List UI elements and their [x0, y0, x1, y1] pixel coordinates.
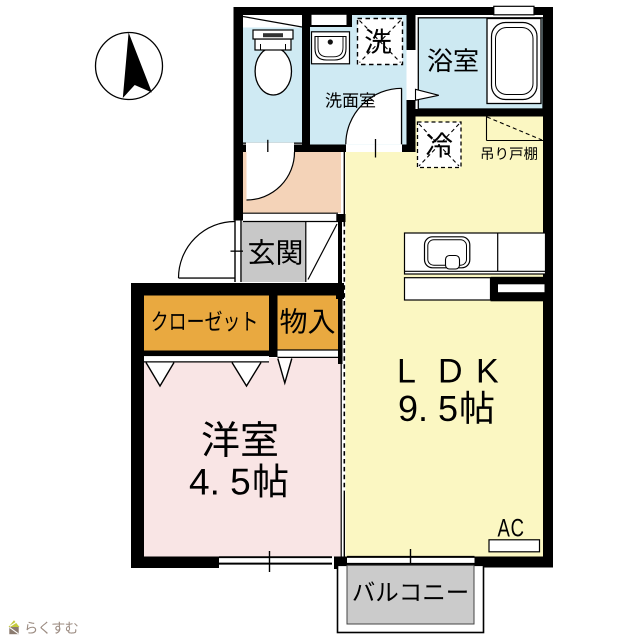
svg-text:D: D: [438, 353, 463, 391]
svg-text:L: L: [397, 353, 416, 391]
svg-text:9. 5: 9. 5: [398, 388, 458, 429]
svg-text:AC: AC: [498, 514, 525, 542]
svg-text:4. 5: 4. 5: [189, 462, 251, 503]
svg-text:K: K: [476, 353, 499, 391]
